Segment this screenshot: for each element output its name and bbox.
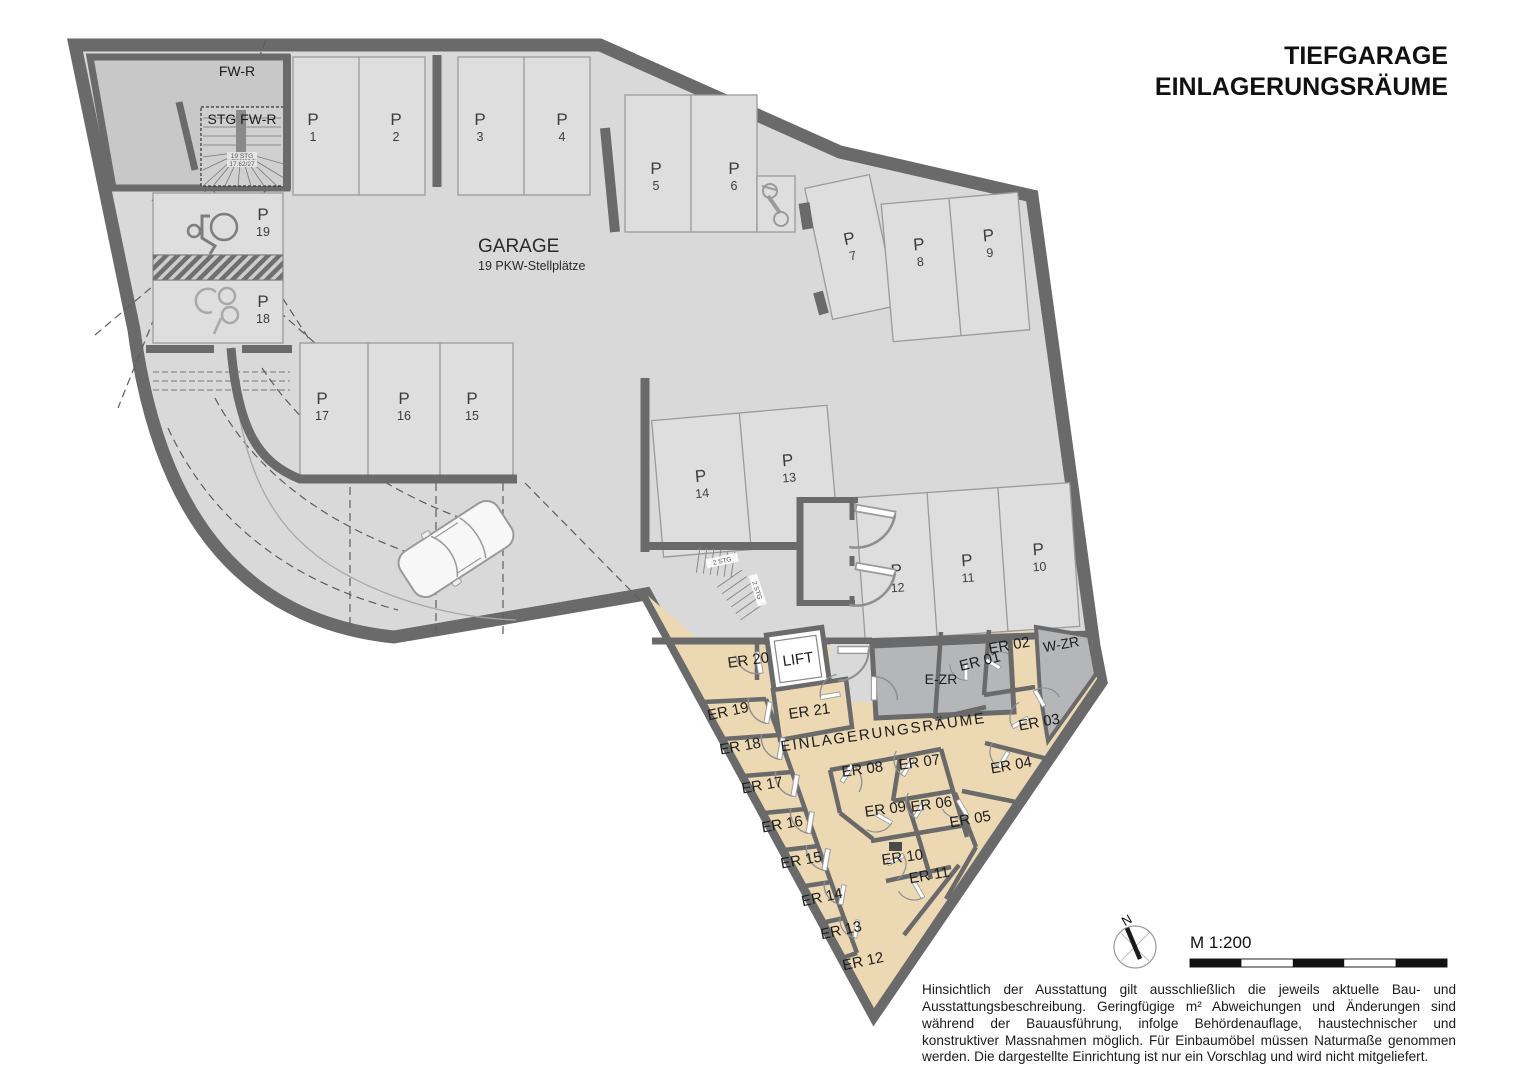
parking-spot-label: P	[694, 466, 707, 486]
scale-label: M 1:200	[1190, 933, 1251, 952]
parking-spot-number: 10	[1032, 559, 1047, 574]
parking-spot-number: 14	[695, 486, 710, 501]
parking-spot-label: P	[316, 389, 327, 408]
parking-spot-label: P	[257, 205, 268, 224]
page-title-line2: EINLAGERUNGSRÄUME	[1155, 73, 1448, 101]
page-title-line1: TIEFGARAGE	[1284, 42, 1448, 70]
parking-spot-number: 6	[731, 179, 738, 193]
spiral-stair-dimension-label: 17.62/27	[229, 161, 255, 168]
parking-spot-number: 18	[256, 312, 270, 326]
parking-spot-label: P	[390, 110, 401, 129]
parking-spot-label: P	[961, 551, 974, 571]
parking-spot-label: P	[728, 159, 739, 178]
parking-spot-label: P	[556, 110, 567, 129]
disclaimer-text: Hinsichtlich der Ausstattung gilt aussch…	[922, 982, 1456, 1066]
floor-plan-page: P 1 P 2 P 3 P 4 P 5 P 6 P 7 P 8 P	[0, 0, 1528, 1080]
spiral-stair-count-label: 19 STG	[231, 153, 253, 160]
parking-spot-label: P	[466, 389, 477, 408]
parking-spot-number: 5	[653, 179, 660, 193]
vestibule	[798, 497, 858, 606]
parking-spot-label: P	[982, 226, 995, 246]
parking-cluster-p18-p19: P 19 P 18	[153, 193, 283, 343]
parking-spot-number: 15	[465, 409, 479, 423]
parking-spot-number: 11	[961, 571, 975, 586]
parking-spot-label: P	[257, 292, 268, 311]
parking-spot-number: 9	[986, 246, 994, 261]
ezr-label: E-ZR	[925, 671, 958, 687]
parking-spot-number: 2	[393, 130, 400, 144]
garage-title: GARAGE	[478, 236, 559, 257]
parking-spot-label: P	[398, 389, 409, 408]
parking-spot-label: P	[912, 235, 925, 255]
garage-subtitle: 19 PKW-Stellplätze	[478, 259, 586, 273]
parking-spot-number: 16	[397, 409, 411, 423]
parking-spot-label: P	[1032, 540, 1045, 560]
fwr-room-label: FW-R	[219, 63, 255, 79]
north-arrow: N	[1114, 911, 1156, 968]
parking-spot-label: P	[307, 110, 318, 129]
title-block: TIEFGARAGE EINLAGERUNGSRÄUME	[1155, 42, 1448, 101]
parking-spot-number: 17	[315, 409, 329, 423]
parking-spot-number: 13	[782, 470, 797, 485]
stg-fwr-label: STG FW-R	[208, 111, 277, 127]
parking-spot-label: P	[781, 450, 794, 470]
parking-spot-label: P	[650, 159, 661, 178]
parking-spot-number: 8	[916, 255, 924, 270]
parking-cluster-p8-p9: P 8 P 9	[881, 192, 1030, 341]
parking-cluster-p10-p12: P 12 P 11 P 10	[855, 483, 1080, 642]
scale-bar: M 1:200	[1190, 933, 1447, 967]
parking-cluster-p15-p17: P 17 P 16 P 15	[300, 343, 513, 478]
parking-spot-number: 3	[477, 130, 484, 144]
parking-spot-number: 4	[559, 130, 566, 144]
hatched-strip	[153, 255, 283, 280]
parking-spot-label: P	[474, 110, 485, 129]
floor-plan-drawing: P 1 P 2 P 3 P 4 P 5 P 6 P 7 P 8 P	[0, 0, 1528, 1080]
parking-spot-number: 19	[256, 225, 270, 239]
fire-escape-room: 19 STG 17.62/27 FW-R STG FW-R	[90, 57, 287, 188]
parking-spot-number: 1	[310, 130, 317, 144]
